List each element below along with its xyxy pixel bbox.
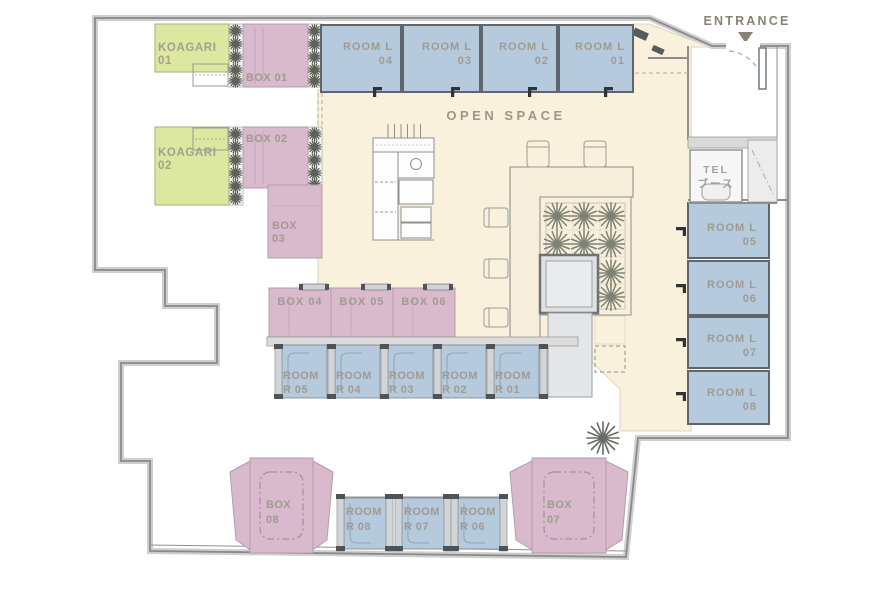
room-r-03-label: ROOM <box>389 370 425 382</box>
kitchen <box>373 124 434 240</box>
room-r-05-label: ROOM <box>283 370 319 382</box>
tel-label: TEL <box>703 164 729 176</box>
box-07-number: 07 <box>547 514 560 526</box>
box-01-label: BOX 01 <box>246 72 288 84</box>
box-door-tabs <box>299 284 453 290</box>
box-08-number: 08 <box>266 514 279 526</box>
room-r-06-label: ROOM <box>460 506 496 518</box>
room-l-06-number: 06 <box>743 293 757 305</box>
room-l-04-label: ROOM L <box>343 41 393 53</box>
rooms-r-bottom: ROOM R 08 ROOM R 07 ROOM R 06 <box>336 494 508 551</box>
entrance-label: ENTRANCE <box>703 14 790 28</box>
tel-side-space <box>748 140 777 202</box>
koagari-01-label: KOAGARI <box>158 42 217 54</box>
room-l-06-label: ROOM L <box>707 279 757 291</box>
box-05-label: BOX 05 <box>339 296 384 308</box>
room-l-02-number: 02 <box>535 55 549 67</box>
room-l-01-number: 01 <box>611 55 625 67</box>
room-l-04-number: 04 <box>379 55 393 67</box>
room-l-03-number: 03 <box>458 55 472 67</box>
room-r-02-label: ROOM <box>442 370 478 382</box>
room-r-04-label: ROOM <box>336 370 372 382</box>
room-r-05-number: R 05 <box>283 384 308 396</box>
box-08-label: BOX <box>266 499 291 511</box>
rooms-r-mid: ROOM R 05 ROOM R 04 ROOM R 03 ROOM R 02 … <box>267 337 578 399</box>
koagari-02: KOAGARI 02 <box>155 127 229 205</box>
room-l-07-number: 07 <box>743 347 757 359</box>
room-l-08-label: ROOM L <box>707 387 757 399</box>
floor-plan-page: ENTRANCE KOAGARI 01 KOAGARI 02 <box>0 0 891 600</box>
room-r-03-number: R 03 <box>389 384 414 396</box>
room-l-01-label: ROOM L <box>575 41 625 53</box>
entrance-door-opening <box>726 41 760 50</box>
room-l-05-label: ROOM L <box>707 222 757 234</box>
open-space-label: OPEN SPACE <box>446 108 565 123</box>
room-l-05-number: 05 <box>743 236 757 248</box>
box-06-label: BOX 06 <box>401 296 446 308</box>
room-r-08-number: R 08 <box>346 521 371 533</box>
box-03-label: BOX <box>272 220 297 232</box>
room-r-07-number: R 07 <box>404 521 429 533</box>
room-r-04-number: R 04 <box>336 384 361 396</box>
room-l-07-label: ROOM L <box>707 333 757 345</box>
box-03: BOX 03 <box>268 185 322 258</box>
pillar-duct <box>548 313 592 397</box>
room-r-01-number: R 01 <box>495 384 520 396</box>
box-03-number: 03 <box>272 233 285 245</box>
room-l-08-number: 08 <box>743 401 757 413</box>
room-r-08-label: ROOM <box>346 506 382 518</box>
box-04-label: BOX 04 <box>277 296 322 308</box>
room-r-02-number: R 02 <box>442 384 467 396</box>
koagari-01: KOAGARI 01 <box>155 24 229 72</box>
rooms-l-top: ROOM L 04 ROOM L 03 ROOM L 02 ROOM L 01 <box>321 25 633 97</box>
box-08: BOX 08 <box>230 458 333 553</box>
box-02-label: BOX 02 <box>246 133 288 145</box>
box-07-label: BOX <box>547 499 572 511</box>
tel-booth: TEL ブース <box>688 137 777 203</box>
plant-icon <box>587 422 619 454</box>
box-07: BOX 07 <box>510 458 628 553</box>
koagari-01-number: 01 <box>158 55 172 67</box>
koagari-02-label: KOAGARI <box>158 147 217 159</box>
tel-label-jp: ブース <box>698 177 735 190</box>
room-r-01-label: ROOM <box>495 370 531 382</box>
entrance-door-leaf <box>759 48 766 89</box>
room-r-06-number: R 06 <box>460 521 485 533</box>
box-01: BOX 01 <box>243 24 308 87</box>
room-l-02-label: ROOM L <box>499 41 549 53</box>
room-r-07-label: ROOM <box>404 506 440 518</box>
koagari-02-number: 02 <box>158 160 172 172</box>
boxes-mid: BOX 04 BOX 05 BOX 06 <box>269 284 455 337</box>
room-l-03-label: ROOM L <box>422 41 472 53</box>
floor-plan: ENTRANCE KOAGARI 01 KOAGARI 02 <box>0 0 891 600</box>
pillar <box>540 255 598 313</box>
box-02: BOX 02 <box>243 127 308 188</box>
